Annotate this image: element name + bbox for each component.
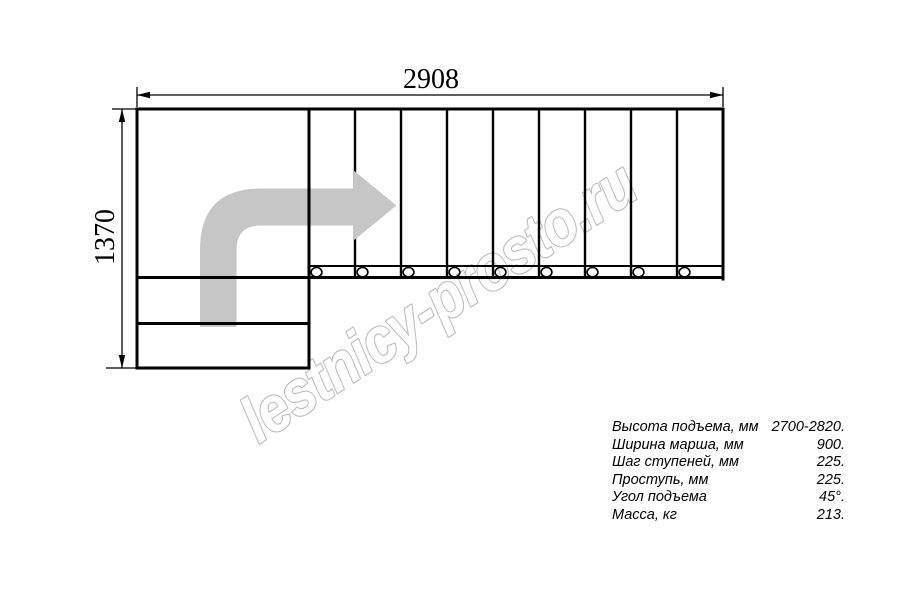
spec-label: Угол подъема — [612, 489, 707, 507]
width-dimension: 2908 — [137, 64, 723, 98]
spec-label: Масса, кг — [612, 507, 677, 525]
spec-value: 45°. — [819, 489, 845, 507]
spec-value: 225. — [817, 454, 845, 472]
spec-row: Проступь, мм 225. — [612, 472, 845, 490]
spec-row: Ширина марша, мм 900. — [612, 437, 845, 455]
direction-arrow — [200, 170, 397, 327]
spec-label: Высота подъема, мм — [612, 419, 759, 437]
spec-label: Проступь, мм — [612, 472, 708, 490]
spec-row: Угол подъема 45°. — [612, 489, 845, 507]
spec-label: Шаг ступеней, мм — [612, 454, 739, 472]
spec-value: 213. — [817, 507, 845, 525]
spec-row: Шаг ступеней, мм 225. — [612, 454, 845, 472]
spec-value: 225. — [817, 472, 845, 490]
spec-table: Высота подъема, мм 2700-2820. Ширина мар… — [612, 419, 845, 524]
spec-value: 2700-2820. — [772, 419, 845, 437]
spec-row: Высота подъема, мм 2700-2820. — [612, 419, 845, 437]
height-dimension: 1370 — [90, 109, 125, 368]
spec-row: Масса, кг 213. — [612, 507, 845, 525]
width-dimension-label: 2908 — [403, 64, 459, 95]
spec-value: 900. — [817, 437, 845, 455]
spec-label: Ширина марша, мм — [612, 437, 744, 455]
height-dimension-label: 1370 — [90, 209, 121, 265]
stair-plan-page: lestnicy-prosto.ru — [0, 0, 900, 600]
